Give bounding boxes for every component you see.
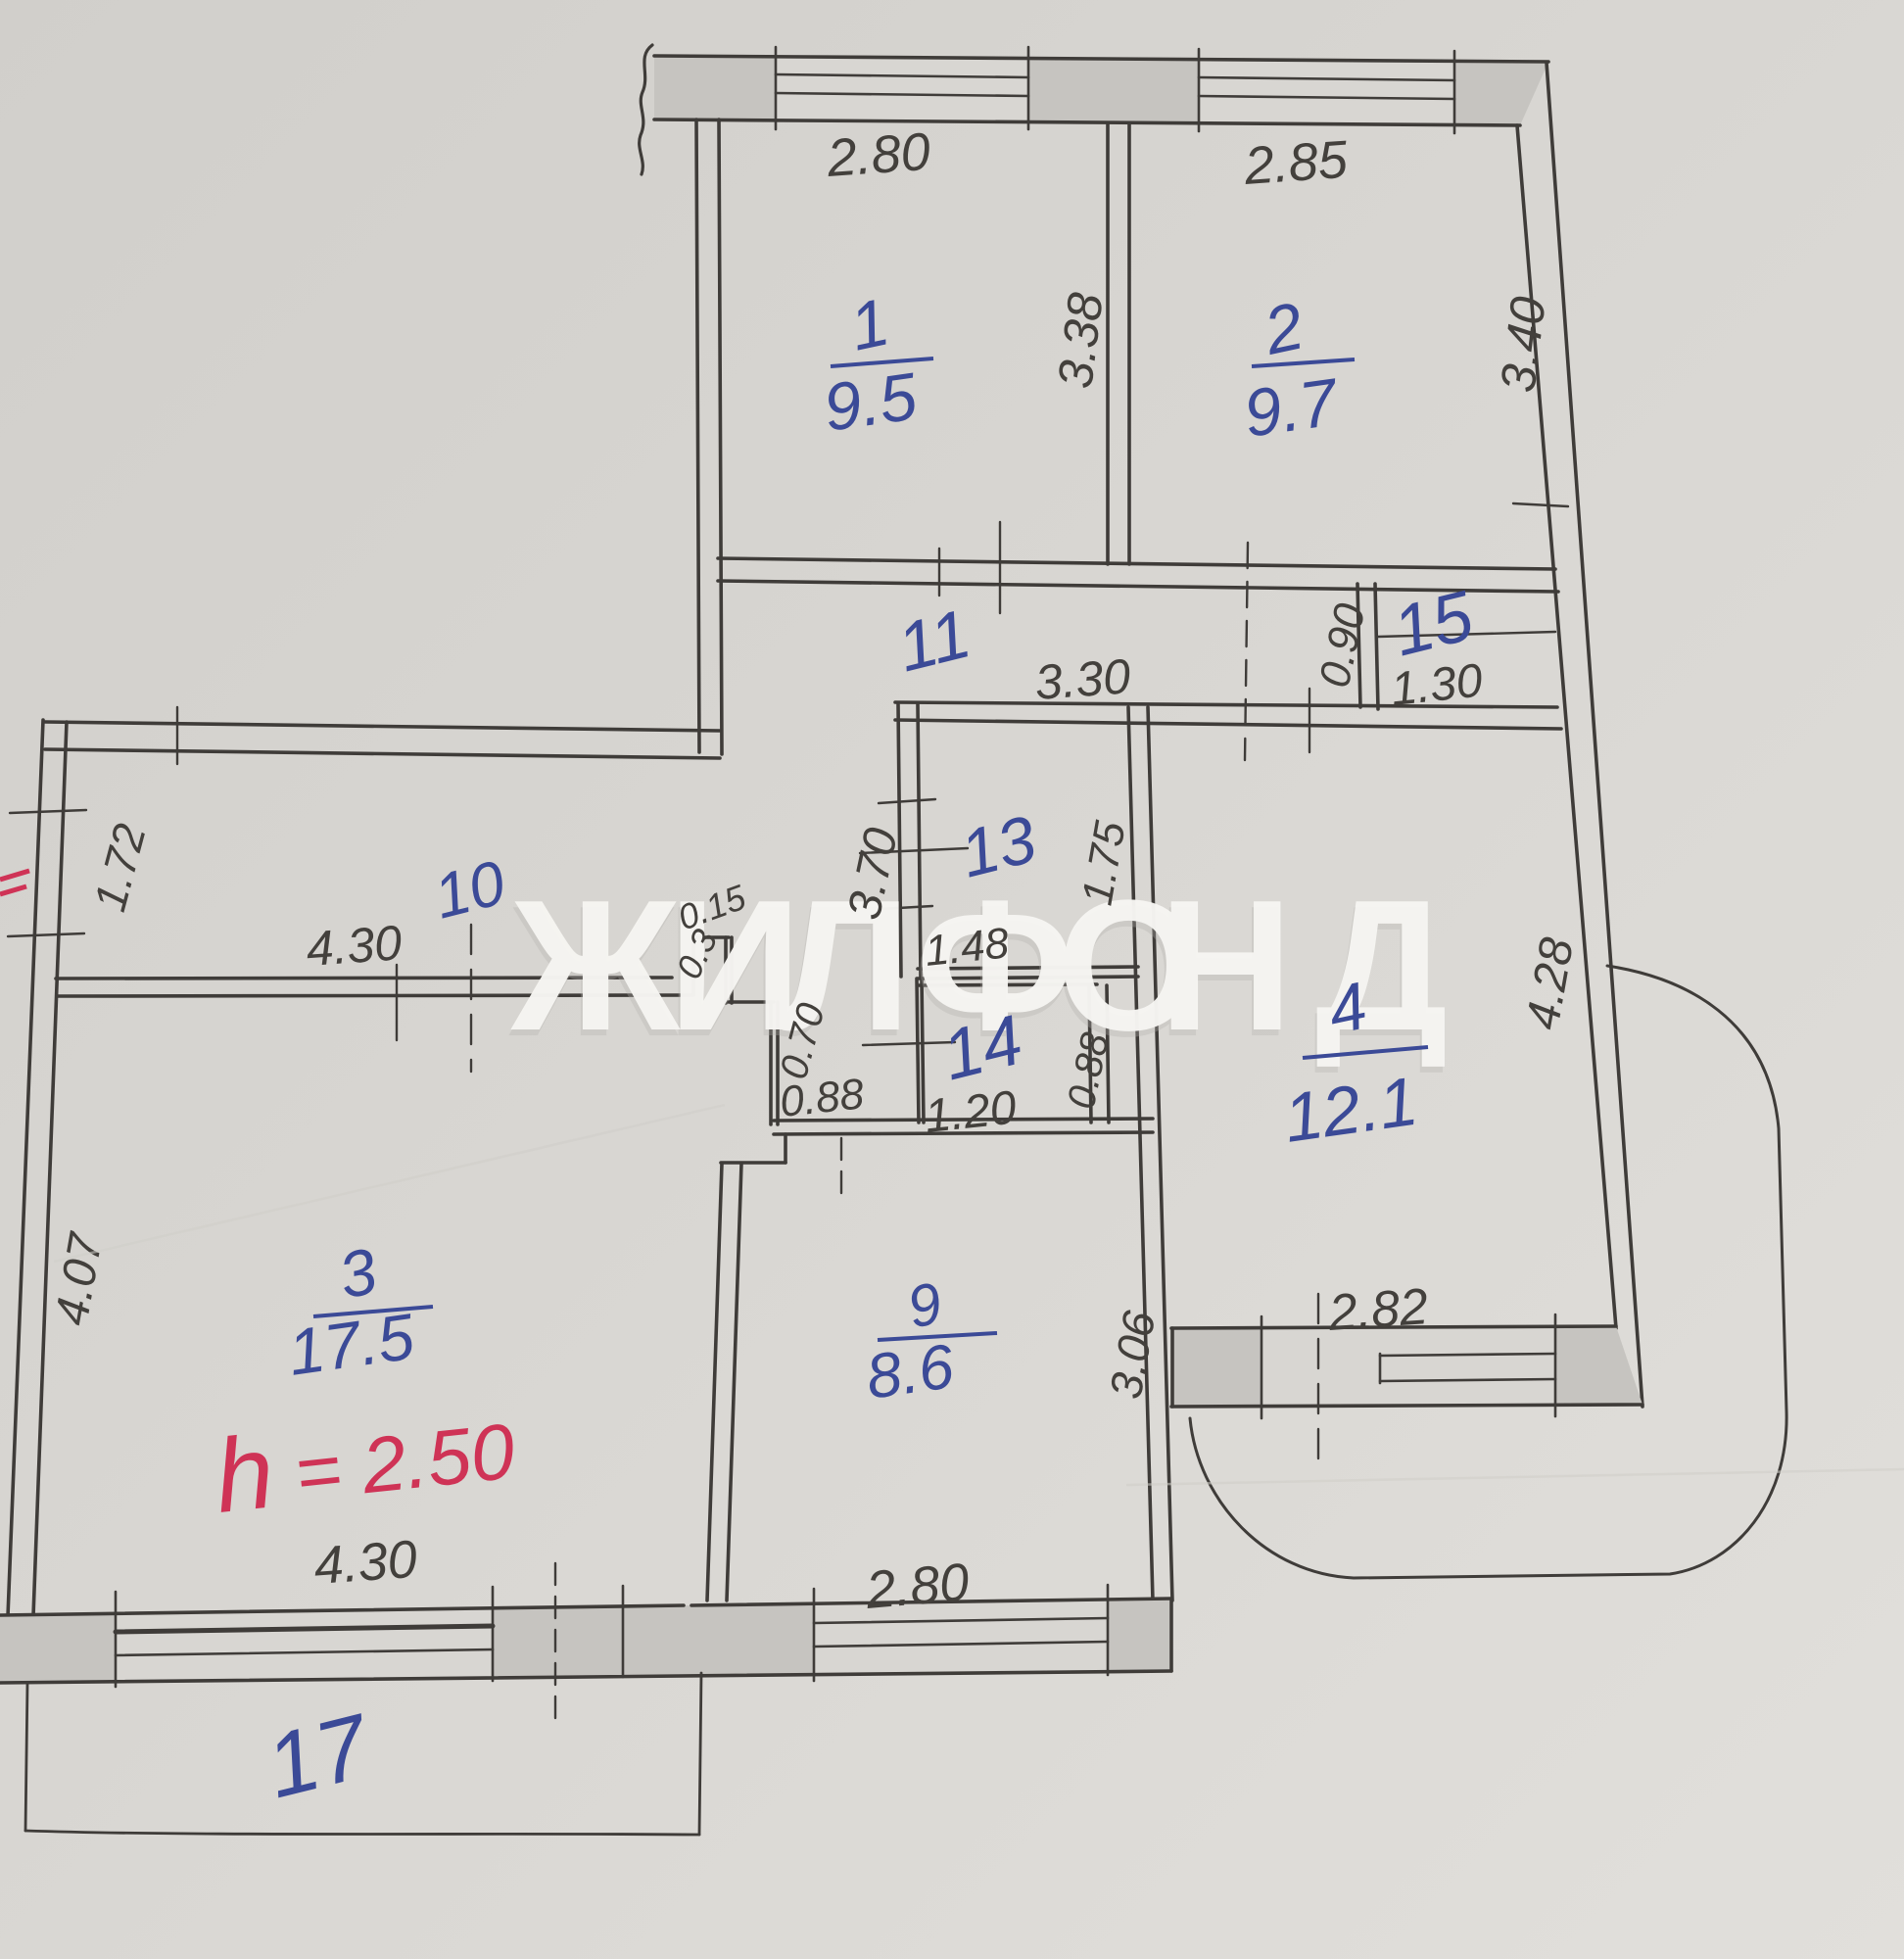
svg-text:4.30: 4.30 xyxy=(305,915,404,977)
svg-text:Н: Н xyxy=(1159,862,1293,1070)
svg-text:2.80: 2.80 xyxy=(825,122,932,188)
svg-text:2.80: 2.80 xyxy=(863,1553,972,1620)
svg-text:3.40: 3.40 xyxy=(1490,294,1555,396)
svg-text:9.5: 9.5 xyxy=(820,358,922,445)
svg-text:1.20: 1.20 xyxy=(923,1081,1020,1143)
svg-text:2.85: 2.85 xyxy=(1242,130,1351,196)
svg-text:3.38: 3.38 xyxy=(1047,290,1113,392)
svg-text:1.48: 1.48 xyxy=(923,919,1012,976)
svg-text:3.30: 3.30 xyxy=(1033,648,1132,710)
svg-text:9.7: 9.7 xyxy=(1240,364,1344,452)
svg-text:1.30: 1.30 xyxy=(1389,654,1486,716)
svg-text:Ж: Ж xyxy=(510,862,681,1070)
svg-text:2.82: 2.82 xyxy=(1326,1278,1430,1342)
svg-text:4.30: 4.30 xyxy=(312,1530,419,1596)
svg-text:8.6: 8.6 xyxy=(862,1330,959,1412)
